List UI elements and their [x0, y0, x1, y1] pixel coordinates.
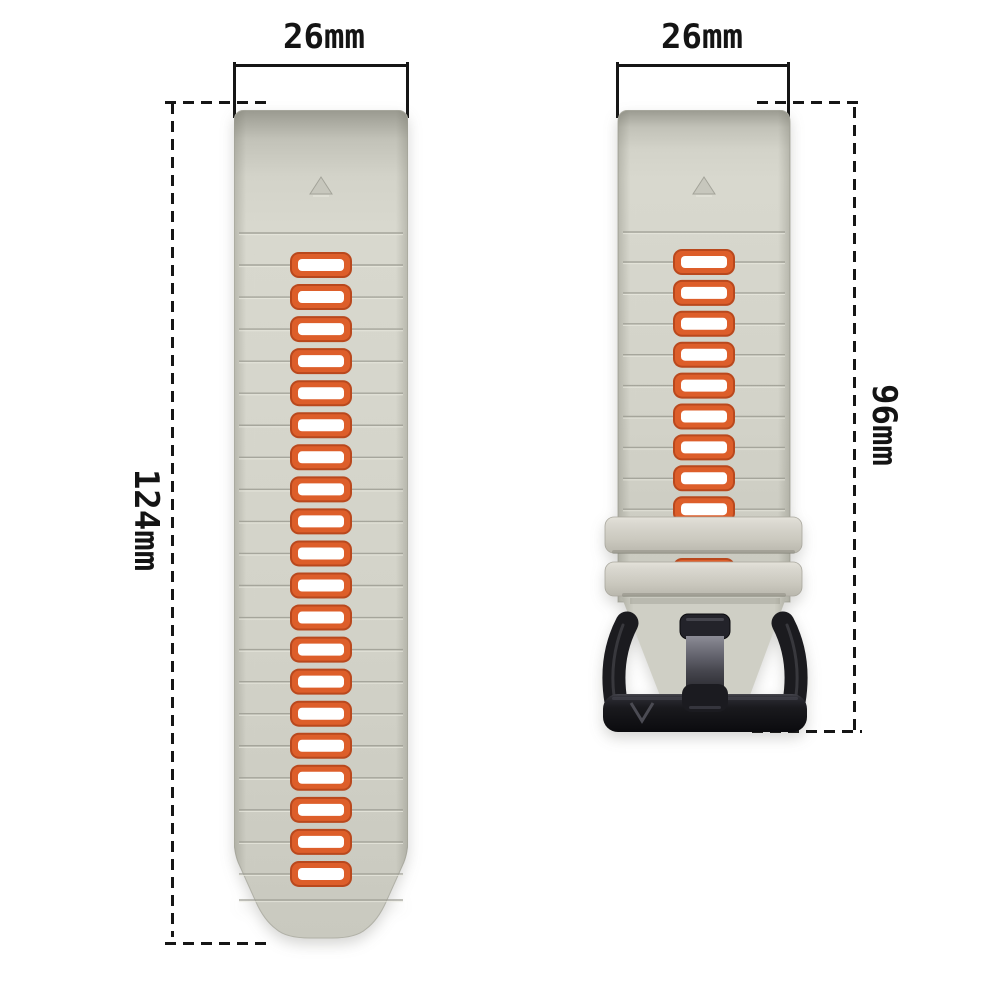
- left-strap-image: [234, 110, 408, 940]
- keeper-loop-2: [605, 562, 802, 597]
- right-length-dim-line: [853, 107, 856, 732]
- strap-hole: [290, 540, 352, 566]
- strap-hole: [290, 412, 352, 438]
- strap-hole: [290, 797, 352, 823]
- strap-hole: [290, 476, 352, 502]
- pin-buckle: [603, 614, 807, 732]
- strap-hole: [290, 316, 352, 342]
- strap-hole: [290, 508, 352, 534]
- strap-hole: [673, 373, 735, 399]
- strap-hole: [673, 404, 735, 430]
- strap-hole: [290, 701, 352, 727]
- strap-hole: [290, 348, 352, 374]
- strap-hole: [290, 765, 352, 791]
- keeper-loop-1: [605, 517, 802, 554]
- strap-hole: [290, 637, 352, 663]
- strap-hole: [290, 444, 352, 470]
- strap-hole: [290, 733, 352, 759]
- strap-hole: [290, 380, 352, 406]
- left-length-extension-bottom: [165, 942, 268, 945]
- left-length-label: 124mm: [129, 469, 163, 571]
- right-length-extension-top: [757, 101, 862, 104]
- left-length-dim-line: [171, 103, 174, 937]
- strap-hole: [290, 605, 352, 631]
- left-width-label: 26mm: [283, 20, 365, 54]
- strap-hole: [673, 465, 735, 491]
- right-width-label: 26mm: [661, 20, 743, 54]
- right-width-dim-line: [618, 64, 790, 67]
- strap-hole: [290, 669, 352, 695]
- strap-hole: [673, 434, 735, 460]
- strap-hole: [673, 311, 735, 337]
- strap-hole: [290, 284, 352, 310]
- strap-hole: [673, 249, 735, 275]
- left-length-extension-top: [165, 101, 268, 104]
- strap-hole: [290, 829, 352, 855]
- strap-hole: [290, 861, 352, 887]
- annotation-layer: 26mm 26mm 124mm 96mm: [0, 0, 1000, 1000]
- strap-hole: [290, 252, 352, 278]
- strap-hole: [290, 573, 352, 599]
- strap-hole: [673, 342, 735, 368]
- buckle-prong: [680, 614, 730, 712]
- right-strap-image: [600, 110, 810, 732]
- strap-hole: [673, 280, 735, 306]
- right-length-label: 96mm: [867, 384, 901, 466]
- left-width-dim-line: [234, 64, 408, 67]
